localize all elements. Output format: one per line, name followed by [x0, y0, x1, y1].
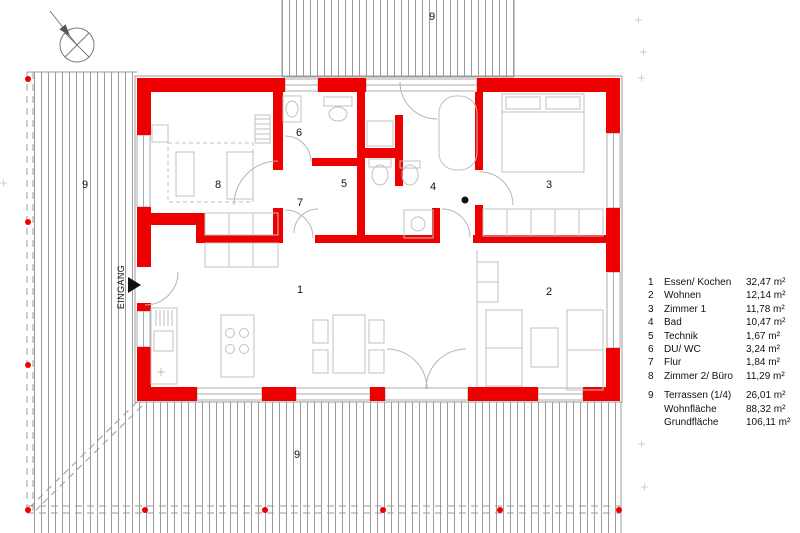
wall-segment	[315, 235, 440, 243]
wall-segment	[395, 115, 403, 148]
legend-row: 2Wohnen12,14 m²	[648, 289, 790, 302]
room-legend: 1Essen/ Kochen32,47 m²2Wohnen12,14 m²3Zi…	[648, 276, 790, 429]
room-marker-9: 9	[82, 179, 88, 191]
wall-segment	[196, 213, 205, 243]
room-marker-5: 5	[341, 178, 347, 190]
double-bed	[502, 94, 584, 172]
wall-segment	[606, 348, 620, 401]
wall-segment	[262, 387, 296, 401]
kitchen-counter	[151, 308, 177, 384]
sofa	[567, 310, 603, 390]
toilet-icon	[324, 97, 352, 121]
legend-row: 4Bad10,47 m²	[648, 316, 790, 329]
shower-icon	[404, 210, 433, 238]
door-arc	[285, 136, 311, 162]
kitchen-island	[221, 315, 254, 377]
door-arc	[285, 210, 313, 238]
walls	[137, 78, 620, 401]
legend-row: 8Zimmer 2/ Büro11,29 m²	[648, 370, 790, 383]
sideboard	[205, 243, 278, 267]
washbasin-icon	[283, 96, 301, 122]
reference-dot	[462, 197, 469, 204]
wall-segment	[395, 158, 403, 186]
legend-row: 9Terrassen (1/4)26,01 m²	[648, 389, 790, 402]
cabinet	[152, 125, 168, 142]
toilet-icon	[369, 159, 391, 185]
terrace-door-arc	[426, 349, 466, 389]
boiler-icon	[367, 121, 393, 146]
wall-segment	[606, 78, 620, 133]
radiator-icon	[255, 115, 270, 143]
legend-row: 3Zimmer 111,78 m²	[648, 303, 790, 316]
legend-row: 7Flur1,84 m²	[648, 356, 790, 369]
wall-segment	[606, 208, 620, 272]
wall-segment	[137, 78, 285, 92]
wall-segment	[137, 387, 197, 401]
wall-segment	[137, 207, 151, 267]
legend-row: 6DU/ WC3,24 m²	[648, 343, 790, 356]
desk	[176, 152, 194, 196]
wardrobe	[483, 209, 603, 236]
legend-row: Wohnfläche88,32 m²	[648, 403, 790, 416]
wall-segment	[468, 387, 538, 401]
legend-row: 5Technik1,67 m²	[648, 330, 790, 343]
legend-row: Grundfläche106,11 m²	[648, 416, 790, 429]
terrace-door-arc	[387, 349, 427, 389]
wall-segment	[137, 78, 151, 135]
entrance-door-arc	[145, 272, 178, 305]
room-marker-7: 7	[297, 197, 303, 209]
wall-segment	[151, 213, 201, 225]
floor-plan: 86574312999 EINGANG 1Essen/ Kochen32,47 …	[0, 0, 800, 533]
room-marker-8: 8	[215, 179, 221, 191]
room-marker-3: 3	[546, 179, 552, 191]
door-arc	[442, 209, 470, 237]
wall-segment	[312, 158, 357, 166]
wall-segment	[205, 235, 283, 243]
legend-row: 1Essen/ Kochen32,47 m²	[648, 276, 790, 289]
room-marker-1: 1	[297, 284, 303, 296]
coffee-table	[531, 328, 558, 367]
shelf	[477, 262, 498, 302]
wall-segment	[475, 205, 483, 243]
terrace-door-threshold	[385, 388, 468, 400]
wall-segment	[273, 92, 283, 170]
room-marker-9: 9	[294, 449, 300, 461]
wall-segment	[370, 387, 385, 401]
bathtub-icon	[439, 96, 477, 170]
wall-segment	[137, 303, 151, 311]
wall-segment	[318, 78, 366, 92]
room-marker-4: 4	[430, 181, 436, 193]
door-arc	[480, 172, 513, 205]
wardrobe	[205, 213, 278, 235]
wall-segment	[357, 92, 365, 243]
room-marker-2: 2	[546, 286, 552, 298]
wall-segment	[477, 78, 620, 92]
deck-posts	[25, 76, 622, 513]
sofa	[486, 310, 522, 386]
door-arc	[234, 161, 278, 205]
desk-return	[227, 152, 253, 199]
room-marker-6: 6	[296, 127, 302, 139]
entrance-label: EINGANG	[116, 265, 126, 309]
room-marker-9: 9	[429, 11, 435, 23]
north-arrow-icon	[50, 11, 94, 62]
dining-table-set	[313, 315, 384, 373]
wall-segment	[365, 148, 403, 158]
